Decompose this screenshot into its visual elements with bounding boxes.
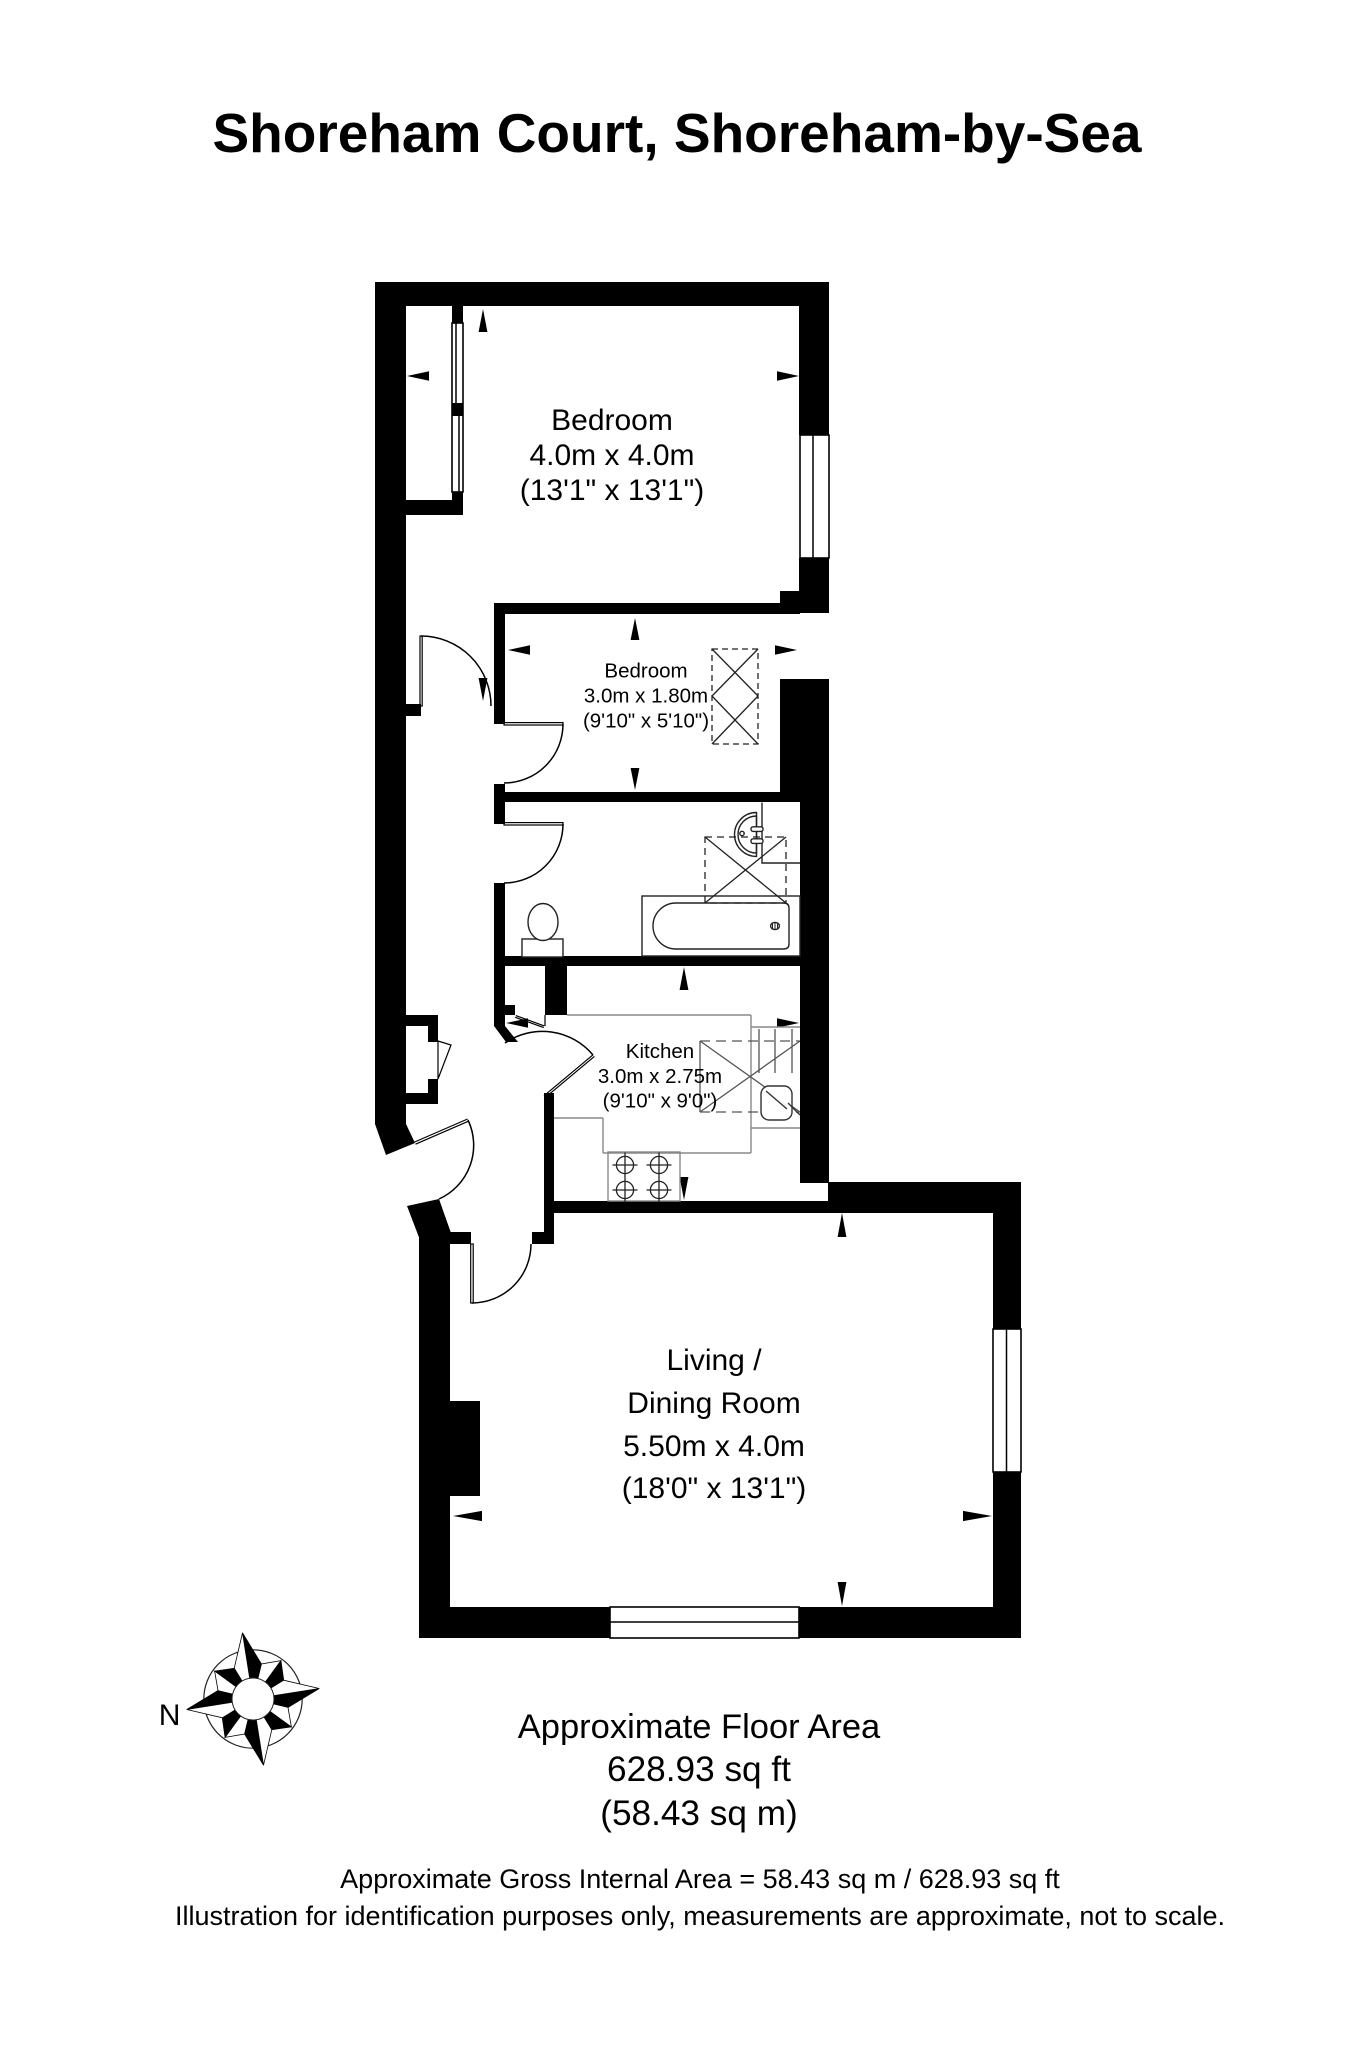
svg-text:Living /: Living / [666, 1344, 762, 1377]
svg-text:(9'10" x 9'0"): (9'10" x 9'0") [603, 1090, 718, 1113]
svg-text:Approximate Floor Area: Approximate Floor Area [518, 1708, 881, 1746]
svg-text:4.0m x 4.0m: 4.0m x 4.0m [529, 439, 694, 472]
svg-text:Kitchen: Kitchen [626, 1040, 694, 1063]
svg-text:Dining Room: Dining Room [627, 1387, 800, 1420]
svg-text:Bedroom: Bedroom [551, 404, 673, 437]
svg-text:628.93 sq ft: 628.93 sq ft [607, 1750, 791, 1789]
svg-text:(58.43 sq m): (58.43 sq m) [600, 1794, 798, 1833]
svg-text:N: N [159, 1699, 181, 1732]
svg-text:3.0m x 2.75m: 3.0m x 2.75m [598, 1065, 722, 1088]
svg-text:3.0m x 1.80m: 3.0m x 1.80m [584, 685, 708, 708]
svg-text:Shoreham Court, Shoreham-by-Se: Shoreham Court, Shoreham-by-Sea [212, 102, 1141, 164]
svg-text:Bedroom: Bedroom [604, 660, 687, 683]
svg-text:5.50m x 4.0m: 5.50m x 4.0m [623, 1430, 805, 1463]
svg-text:(13'1" x 13'1"): (13'1" x 13'1") [520, 474, 705, 507]
svg-text:(9'10" x 5'10"): (9'10" x 5'10") [583, 710, 709, 733]
svg-text:Illustration for identificatio: Illustration for identification purposes… [175, 1901, 1225, 1931]
svg-text:Approximate Gross Internal Are: Approximate Gross Internal Area = 58.43 … [340, 1864, 1060, 1894]
svg-text:(18'0" x 13'1"): (18'0" x 13'1") [622, 1472, 807, 1505]
